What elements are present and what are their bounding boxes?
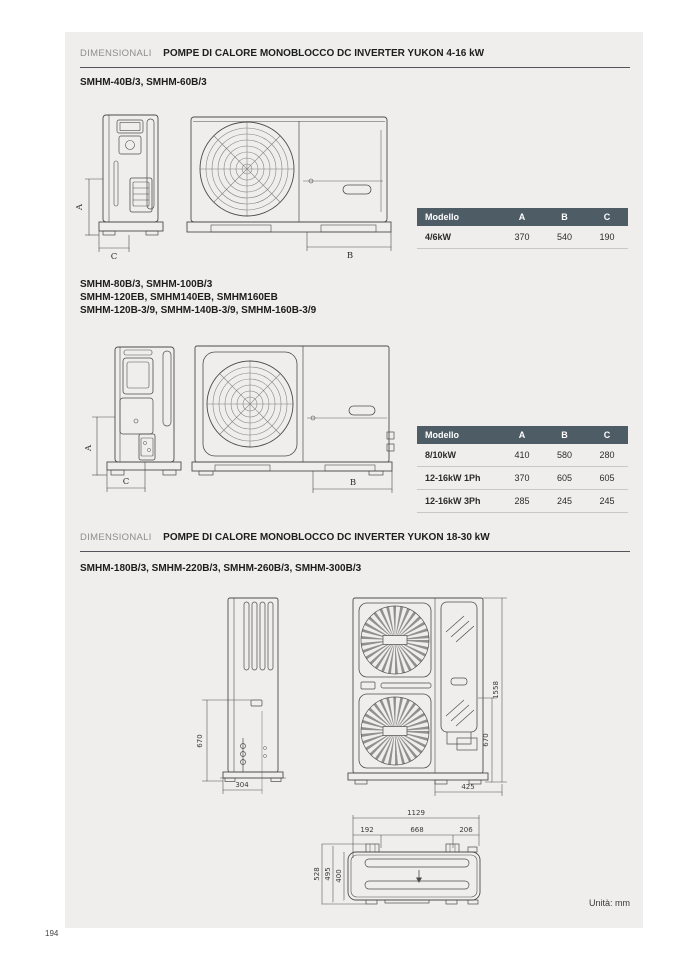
section1-title: POMPE DI CALORE MONOBLOCCO DC INVERTER Y… bbox=[163, 48, 484, 59]
section2-models-line3: SMHM-120B-3/9, SMHM-140B-3/9, SMHM-160B-… bbox=[80, 304, 316, 317]
table-header-row: Modello A B C bbox=[417, 208, 628, 226]
catalog-page: 194 DIMENSIONALI POMPE DI CALORE MONOBLO… bbox=[0, 0, 677, 958]
drawing-4-16kw-small: A C B bbox=[73, 106, 413, 266]
section1-kicker: DIMENSIONALI bbox=[80, 48, 152, 59]
dim-label-b: B bbox=[350, 478, 356, 488]
dim-label-b: B bbox=[347, 251, 353, 261]
section1-models: SMHM-40B/3, SMHM-60B/3 bbox=[80, 76, 207, 89]
section3-models: SMHM-180B/3, SMHM-220B/3, SMHM-260B/3, S… bbox=[80, 562, 361, 575]
cell-a: 410 bbox=[501, 450, 543, 460]
content-panel: DIMENSIONALI POMPE DI CALORE MONOBLOCCO … bbox=[65, 32, 643, 928]
front-view-drawing bbox=[192, 346, 394, 475]
drawing-18-30kw: 670 304 1558 670 425 bbox=[195, 588, 515, 808]
dimension-lines bbox=[322, 815, 479, 904]
dim-top-depth-mid: 495 bbox=[324, 867, 332, 880]
section3-header: DIMENSIONALI POMPE DI CALORE MONOBLOCCO … bbox=[80, 527, 630, 552]
cell-model: 12-16kW 3Ph bbox=[417, 496, 501, 506]
dim-top-seg-right: 206 bbox=[459, 826, 473, 834]
side-view-drawing bbox=[107, 347, 181, 475]
table-header-row: Modello A B C bbox=[417, 426, 628, 444]
dim-label-c: C bbox=[123, 477, 130, 487]
side-view-drawing bbox=[99, 115, 163, 235]
side-view-drawing bbox=[220, 598, 286, 782]
col-c: C bbox=[586, 430, 628, 440]
cell-model: 12-16kW 1Ph bbox=[417, 473, 501, 483]
cell-model: 4/6kW bbox=[417, 232, 501, 242]
dim-top-depth-inner: 400 bbox=[335, 869, 343, 882]
fan-grille-bottom bbox=[361, 697, 429, 765]
cell-b: 580 bbox=[543, 450, 586, 460]
section3-kicker: DIMENSIONALI bbox=[80, 532, 152, 543]
cell-c: 245 bbox=[586, 496, 628, 506]
front-view-drawing bbox=[348, 598, 488, 784]
cell-a: 285 bbox=[501, 496, 543, 506]
drawing-18-30kw-top-view: 1129 192 668 206 528 495 400 bbox=[308, 802, 513, 922]
cell-model: 8/10kW bbox=[417, 450, 501, 460]
cell-c: 190 bbox=[586, 232, 628, 242]
dim-label-a: A bbox=[84, 444, 94, 452]
col-c: C bbox=[586, 212, 628, 222]
col-a: A bbox=[501, 430, 543, 440]
col-b: B bbox=[543, 430, 586, 440]
cell-b: 540 bbox=[543, 232, 586, 242]
dimensions-table-8-16: Modello A B C 8/10kW 410 580 280 12-16kW… bbox=[417, 426, 628, 513]
cell-b: 605 bbox=[543, 473, 586, 483]
drawing-8-16kw: A C B bbox=[87, 326, 417, 511]
col-b: B bbox=[543, 212, 586, 222]
fan-grille bbox=[200, 122, 294, 216]
dim-front-height-total: 1558 bbox=[492, 681, 500, 699]
section2-models-line2: SMHM-120EB, SMHM140EB, SMHM160EB bbox=[80, 291, 316, 304]
col-modello: Modello bbox=[417, 430, 501, 440]
table-row: 4/6kW 370 540 190 bbox=[417, 226, 628, 249]
cell-c: 605 bbox=[586, 473, 628, 483]
table-row: 12-16kW 3Ph 285 245 245 bbox=[417, 490, 628, 513]
dim-label-c: C bbox=[111, 252, 118, 262]
front-view-drawing bbox=[187, 117, 391, 232]
dim-top-width-total: 1129 bbox=[407, 809, 425, 817]
dim-top-depth-outer: 528 bbox=[313, 867, 321, 880]
dim-top-seg-left: 192 bbox=[360, 826, 373, 834]
dim-front-width-partial: 425 bbox=[461, 783, 474, 791]
dim-side-depth: 304 bbox=[235, 781, 249, 789]
units-note: Unità: mm bbox=[589, 898, 630, 908]
section1-header: DIMENSIONALI POMPE DI CALORE MONOBLOCCO … bbox=[80, 43, 630, 68]
col-a: A bbox=[501, 212, 543, 222]
cell-a: 370 bbox=[501, 473, 543, 483]
table-row: 8/10kW 410 580 280 bbox=[417, 444, 628, 467]
cell-a: 370 bbox=[501, 232, 543, 242]
dim-label-a: A bbox=[75, 203, 85, 211]
dim-side-height: 670 bbox=[196, 734, 204, 747]
top-view-drawing bbox=[348, 844, 480, 904]
section3-title: POMPE DI CALORE MONOBLOCCO DC INVERTER Y… bbox=[163, 532, 490, 543]
table-row: 12-16kW 1Ph 370 605 605 bbox=[417, 467, 628, 490]
cell-c: 280 bbox=[586, 450, 628, 460]
cell-b: 245 bbox=[543, 496, 586, 506]
section2-models: SMHM-80B/3, SMHM-100B/3 SMHM-120EB, SMHM… bbox=[80, 278, 316, 317]
section2-models-line1: SMHM-80B/3, SMHM-100B/3 bbox=[80, 278, 316, 291]
dim-top-seg-center: 668 bbox=[410, 826, 423, 834]
col-modello: Modello bbox=[417, 212, 501, 222]
dim-front-height-partial: 670 bbox=[482, 733, 490, 746]
dimension-lines bbox=[92, 417, 392, 493]
dimensions-table-4-16: Modello A B C 4/6kW 370 540 190 bbox=[417, 208, 628, 249]
fan-grille-top bbox=[361, 606, 429, 674]
page-number: 194 bbox=[45, 929, 58, 938]
